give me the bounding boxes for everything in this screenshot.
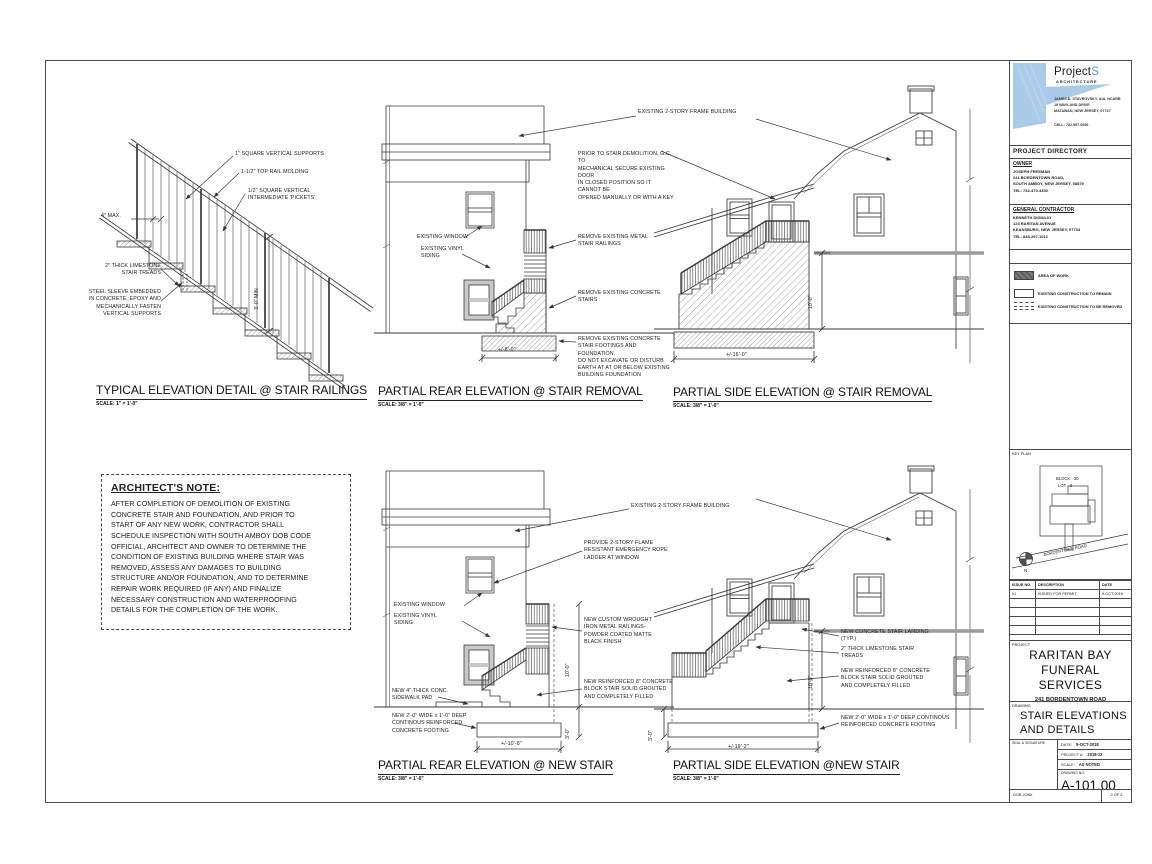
dob-row: DOB JOB# 2 OF 2	[1010, 790, 1131, 803]
label-min-height: 3'-0" MIN	[254, 288, 260, 310]
issue-col-date: DATE	[1100, 581, 1131, 590]
issue-table: ISSUE NO. DESCRIPTION DATE 01 ISSUED FOR…	[1010, 580, 1131, 640]
drawing-label: DRAWING	[1010, 702, 1131, 709]
logo-brand: ProjectS	[1054, 66, 1099, 78]
legend-area-of-work: AREA OF WORK	[1038, 273, 1069, 278]
project-section: PROJECT RARITAN BAY FUNERAL SERVICES 241…	[1010, 640, 1131, 702]
project-name-1: RARITAN BAY	[1010, 648, 1131, 663]
railing-detail-title: TYPICAL ELEVATION DETAIL @ STAIR RAILING…	[96, 383, 367, 400]
owner-label: OWNER	[1013, 161, 1131, 167]
title-block: ProjectS ARCHITECTURE JAMES D. STAVROVSK…	[1009, 61, 1131, 802]
label-steel-sleeve: STEEL SLEEVE EMBEDDED IN CONCRETE. EPOXY…	[73, 289, 161, 318]
spacer-section-1	[1010, 250, 1131, 264]
drawing-number: A-101.00	[1058, 776, 1131, 790]
label-vertical-supports: 1" SQUARE VERTICAL SUPPORTS	[235, 151, 324, 158]
rear-new-scale: SCALE: 3/8" = 1'-0"	[378, 776, 424, 782]
label-4in-max: 4" MAX.	[101, 213, 121, 220]
label-limestone-treads: 2" THICK LIMESTONE STAIR TREADS	[81, 263, 161, 278]
key-plan-drawing: BLOCK - 30 LOT - 8 BORDENTOWN ROAD N	[1010, 458, 1131, 576]
rear-new-title: PARTIAL REAR ELEVATION @ NEW STAIR	[378, 758, 613, 775]
owner-address: JOSEPH FREEMAN 241 BORDENTOWN ROAD, SOUT…	[1013, 169, 1131, 194]
rear-removal-title: PARTIAL REAR ELEVATION @ STAIR REMOVAL	[378, 384, 643, 401]
label-pickets: 1/2" SQUARE VERTICAL INTERMEDIATE 'PICKE…	[248, 188, 315, 203]
rear-new-panel: EXISTING 2-STORY FRAME BUILDING PROVIDE …	[374, 461, 674, 761]
key-plan-section: KEY PLAN BLOCK - 30 LOT - 8	[1010, 450, 1131, 580]
dim-rear-new-height: 10'-0"	[565, 664, 571, 678]
side-removal-drawing	[654, 81, 984, 401]
stamp-section: SEAL & SIGNATURE DATE:9-OCT-2018 PROJECT…	[1010, 740, 1131, 790]
side-removal-scale: SCALE: 3/8" = 1'-0"	[673, 403, 719, 409]
rear-removal-panel: EXISTING 2-STORY FRAME BUILDING PRIOR TO…	[374, 96, 674, 386]
drawing-name-section: DRAWING STAIR ELEVATIONS AND DETAILS	[1010, 702, 1131, 740]
side-new-scale: SCALE: 3/8" = 1'-0"	[673, 776, 719, 782]
architect-cell: CELL: 732.997.0956	[1054, 123, 1088, 129]
railing-detail-panel: 1" SQUARE VERTICAL SUPPORTS 1-1/2" TOP R…	[73, 139, 373, 389]
project-label: PROJECT	[1010, 641, 1131, 648]
project-directory-header: PROJECT DIRECTORY	[1010, 146, 1131, 159]
project-no-label: PROJECT #:	[1061, 752, 1083, 757]
label-new-landing: NEW CONCRETE STAIR LANDING (TYP.)	[841, 629, 929, 644]
label-new-footing-side: NEW 2'-0" WIDE x 1'-0" DEEP CONTINOUS RE…	[841, 715, 950, 730]
issue-row-desc: ISSUED FOR PERMIT	[1036, 590, 1100, 599]
logo-brand-text: Project	[1054, 66, 1091, 78]
key-plan-block: BLOCK - 30	[1056, 476, 1079, 481]
dob-job-label: DOB JOB#	[1010, 790, 1101, 803]
project-no-value: 2018-12	[1087, 752, 1102, 757]
label-new-footing: NEW 2'-0" WIDE x 1'-0" DEEP CONTINOUS RE…	[392, 713, 466, 735]
gc-address: KENNETH DIGIULIO 123 RARITAN AVENUE KEAN…	[1013, 215, 1131, 240]
issue-col-desc: DESCRIPTION	[1036, 581, 1100, 590]
label-existing-window-new: EXISTING WINDOW	[394, 602, 445, 609]
label-new-railings: NEW CUSTOM WROUGHT IRON METAL RAILINGS- …	[584, 617, 652, 646]
dim-side-new-width: +/-19'-2"	[728, 744, 749, 751]
legend-section: AREA OF WORK EXISTING CONSTRUCTION TO RE…	[1010, 264, 1131, 324]
side-removal-panel: 10'-0" +/-16'-0"	[654, 81, 984, 401]
architects-note-title: ARCHITECT'S NOTE:	[111, 482, 341, 494]
label-existing-window: EXISTING WINDOW	[417, 234, 468, 241]
project-name-2: FUNERAL SERVICES	[1010, 663, 1131, 693]
label-top-rail: 1-1/2" TOP RAIL MOLDING	[241, 169, 309, 176]
dim-side-new-footing: 3'-0"	[648, 730, 654, 741]
dim-side-removal-width: +/-16'-0"	[726, 352, 747, 359]
side-new-title: PARTIAL SIDE ELEVATION @NEW STAIR	[673, 758, 900, 775]
drawing-name: STAIR ELEVATIONS AND DETAILS	[1020, 709, 1131, 738]
label-limestone-treads-new: 2" THICK LIMESTONE STAIR TREADS	[841, 646, 914, 661]
construction-removed-swatch	[1014, 302, 1034, 310]
label-existing-siding: EXISTING VINYL SIDING	[421, 246, 464, 261]
dim-rear-new-footing: 3'-0"	[565, 728, 571, 739]
gc-section: GENERAL CONTRACTOR KENNETH DIGIULIO 123 …	[1010, 205, 1131, 250]
dim-side-new-height: 10'-0"	[808, 676, 814, 690]
issue-col-no: ISSUE NO.	[1010, 581, 1036, 590]
owner-section: OWNER JOSEPH FREEMAN 241 BORDENTOWN ROAD…	[1010, 159, 1131, 205]
construction-remain-swatch	[1014, 289, 1034, 298]
key-plan-label: KEY PLAN	[1010, 450, 1131, 457]
area-of-work-swatch	[1014, 271, 1034, 280]
date-label: DATE:	[1061, 742, 1072, 747]
label-existing-siding-new: EXISTING VINYL SIDING	[394, 613, 437, 628]
logo-block: ProjectS ARCHITECTURE JAMES D. STAVROVSK…	[1010, 61, 1131, 146]
project-directory-title: PROJECT DIRECTORY	[1010, 146, 1131, 157]
side-removal-title: PARTIAL SIDE ELEVATION @ STAIR REMOVAL	[673, 385, 932, 402]
drawing-sheet: 1" SQUARE VERTICAL SUPPORTS 1-1/2" TOP R…	[45, 60, 1132, 803]
gc-label: GENERAL CONTRACTOR	[1013, 207, 1131, 213]
issue-row-no: 01	[1010, 590, 1036, 599]
north-arrow-icon: N	[1024, 568, 1027, 573]
logo-tagline: ARCHITECTURE	[1056, 79, 1098, 84]
architects-note: ARCHITECT'S NOTE: AFTER COMPLETION OF DE…	[101, 474, 351, 630]
label-new-block-stair-side: NEW REINFORCED 8" CONCRETE BLOCK STAIR S…	[841, 668, 930, 690]
key-plan-lot: LOT - 8	[1058, 483, 1073, 488]
side-new-panel: NEW CONCRETE STAIR LANDING (TYP.) 2" THI…	[654, 461, 984, 781]
dim-side-removal-height: 10'-0"	[808, 296, 814, 310]
logo-brand-accent: S	[1091, 66, 1099, 78]
label-sidewalk-pad: NEW 4" THICK CONC. SIDEWALK PAD	[392, 688, 448, 703]
rear-removal-scale: SCALE: 3/8" = 1'-0"	[378, 402, 424, 408]
architect-address: JAMES D. STAVROVSKY, AIA, NCARB 19 WAYLA…	[1054, 97, 1121, 115]
scale-label: SCALE:	[1061, 762, 1075, 767]
label-remove-railings: REMOVE EXISTING METAL STAIR RAILINGS	[578, 234, 648, 249]
spacer-section-2	[1010, 324, 1131, 450]
scale-value: AS NOTED	[1079, 762, 1100, 767]
legend-removed: EXISTING CONSTRUCTION TO BE REMOVED	[1038, 304, 1122, 309]
sheet-number: 2 OF 2	[1101, 790, 1131, 803]
seal-signature-cell: SEAL & SIGNATURE	[1010, 740, 1058, 790]
label-remove-stairs: REMOVE EXISTING CONCRETE STAIRS	[578, 290, 661, 305]
railing-detail-scale: SCALE: 1" = 1'-0"	[96, 401, 138, 407]
dim-rear-new-width: +/-10'-8"	[501, 741, 522, 748]
legend-remain: EXISTING CONSTRUCTION TO REMAIN	[1038, 291, 1111, 296]
side-new-drawing	[654, 461, 984, 781]
date-value: 9-OCT-2018	[1076, 742, 1099, 747]
architects-note-body: AFTER COMPLETION OF DEMOLITION OF EXISTI…	[111, 499, 341, 616]
dim-rear-removal-width: +/-8'-0"	[498, 347, 516, 354]
issue-row-date: 9-OCT-2018	[1100, 590, 1131, 599]
